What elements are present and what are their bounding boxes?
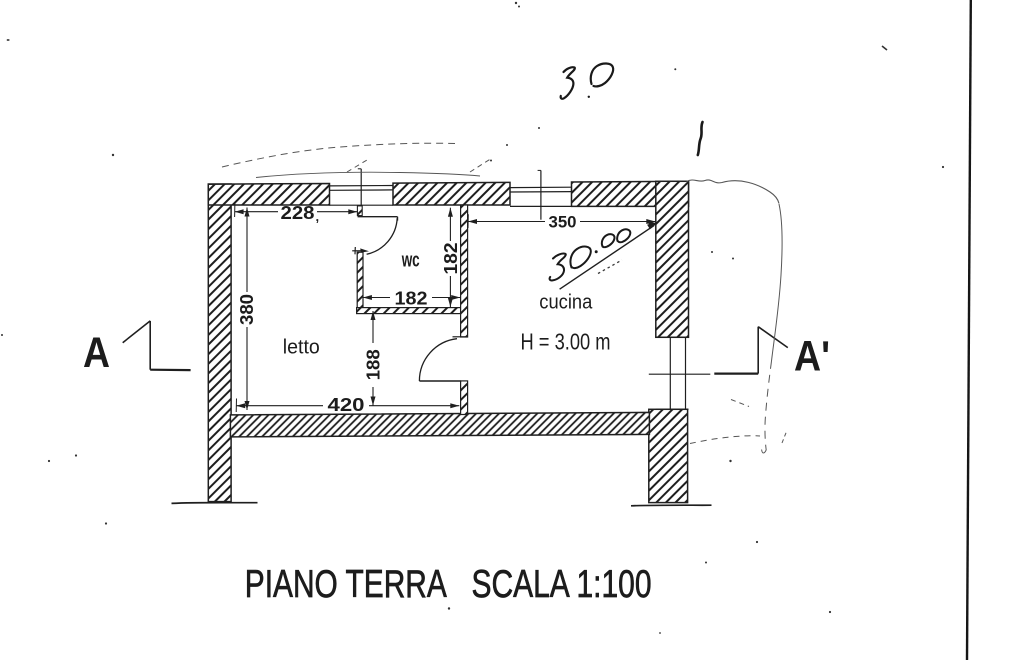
svg-text:350: 350 bbox=[549, 214, 577, 232]
svg-text:SCALA 1:100: SCALA 1:100 bbox=[472, 563, 652, 606]
svg-text:letto: letto bbox=[283, 337, 320, 359]
svg-text:A': A' bbox=[794, 333, 830, 381]
svg-text:380: 380 bbox=[237, 294, 257, 325]
svg-text:182: 182 bbox=[441, 243, 461, 275]
svg-text:PIANO TERRA: PIANO TERRA bbox=[245, 563, 447, 606]
svg-text:wc: wc bbox=[401, 249, 420, 271]
svg-text:420: 420 bbox=[328, 395, 365, 415]
svg-text:A: A bbox=[83, 329, 110, 377]
svg-text:H = 3.00 m: H = 3.00 m bbox=[521, 328, 611, 354]
svg-text:cucina: cucina bbox=[539, 292, 593, 314]
svg-text:,: , bbox=[316, 209, 320, 224]
svg-text:188: 188 bbox=[363, 349, 383, 380]
svg-text:228: 228 bbox=[281, 203, 315, 223]
svg-text:182: 182 bbox=[395, 288, 428, 308]
